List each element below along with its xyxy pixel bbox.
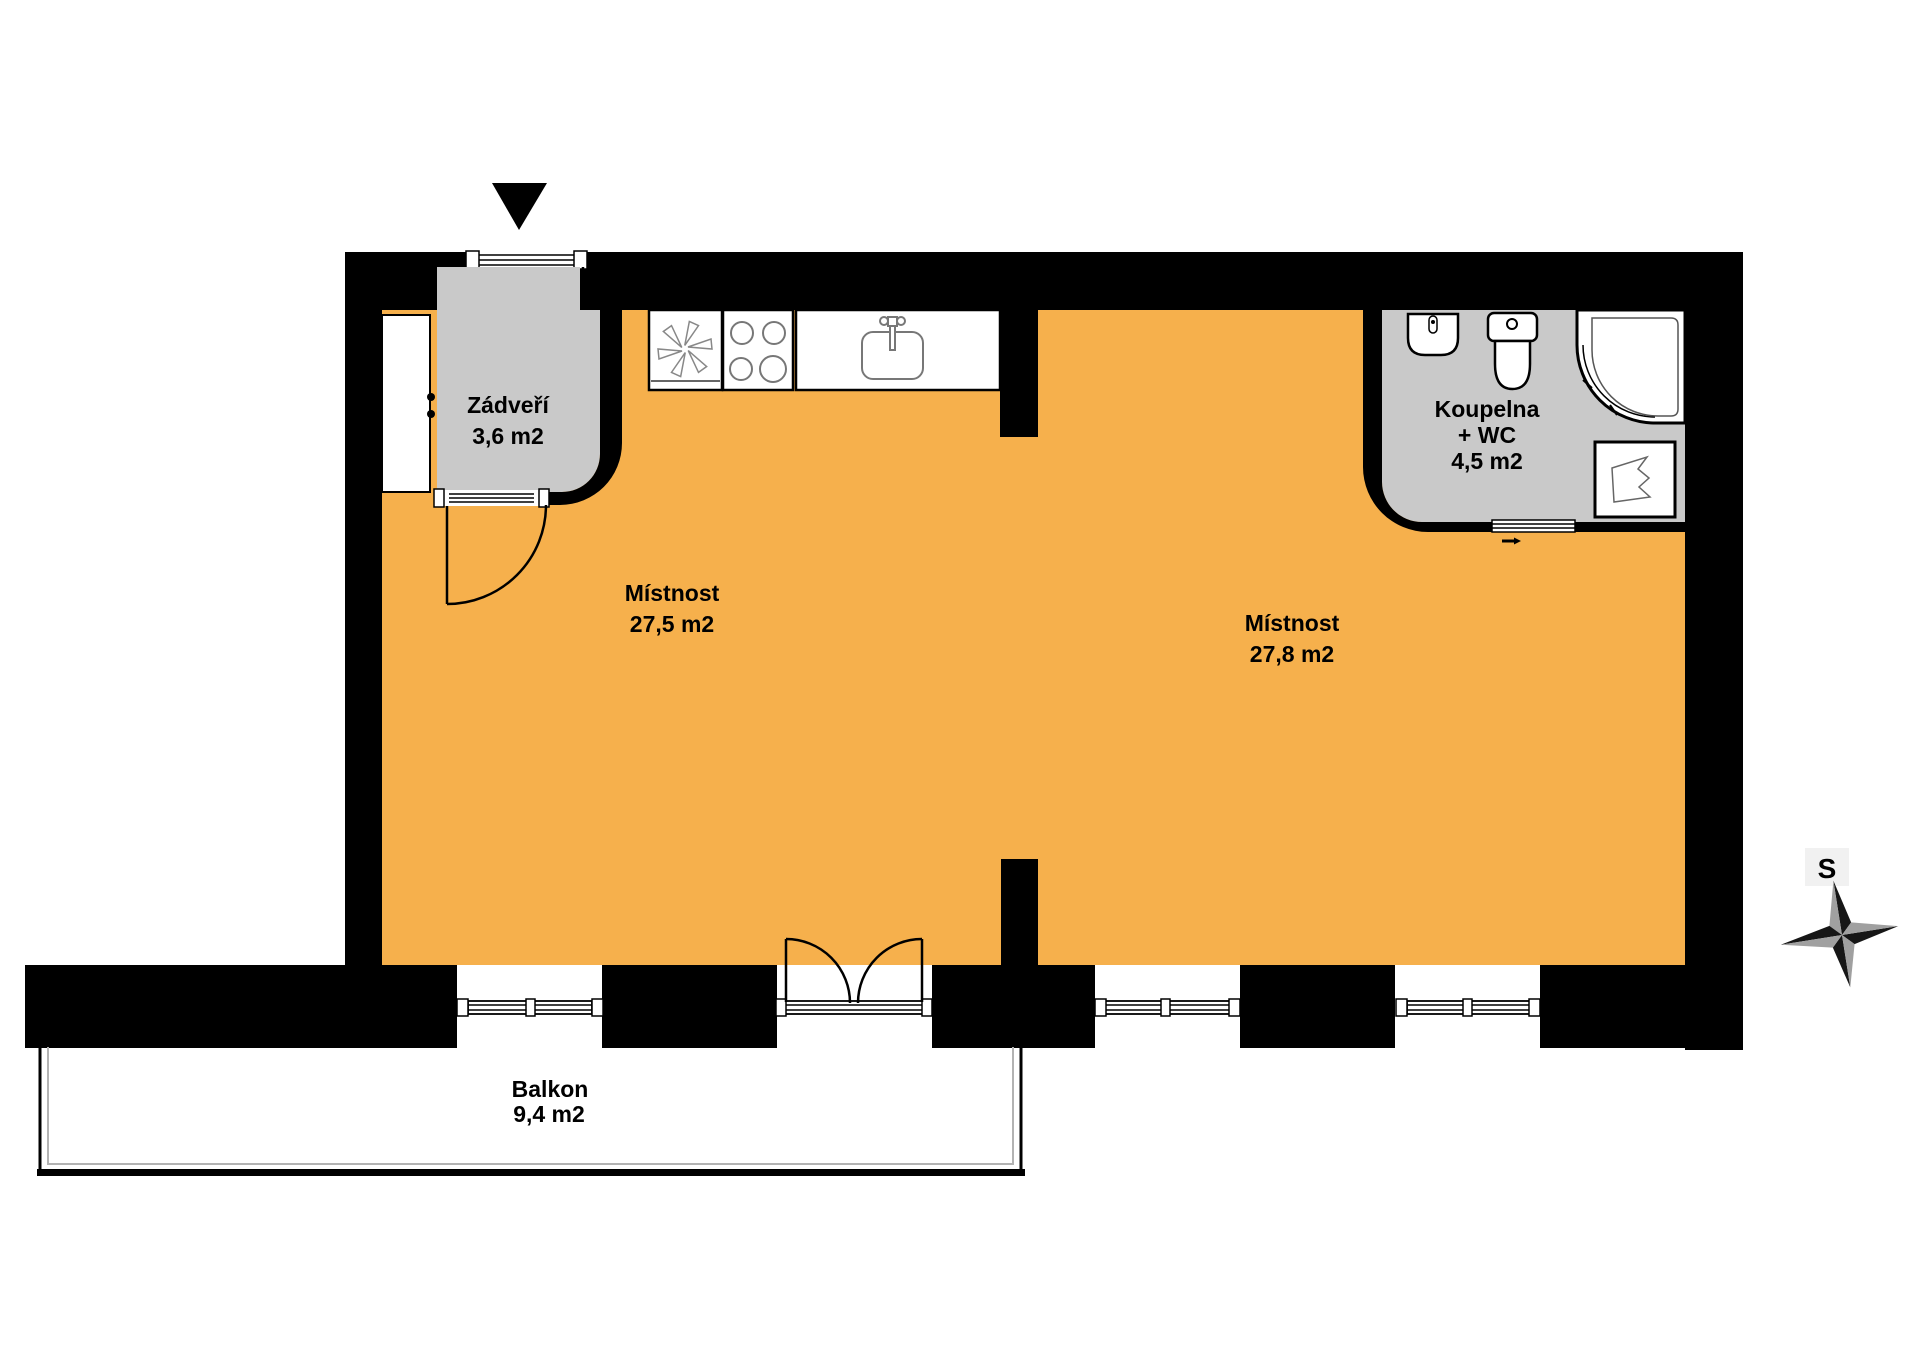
wall-bottom-3 (932, 965, 1095, 1048)
wall-bottom-2 (602, 965, 777, 1048)
wall-stub-top-divider (1000, 252, 1038, 437)
bathroom: Koupelna + WC 4,5 m2 (1363, 310, 1685, 545)
bathroom-sink-symbol (1408, 314, 1458, 355)
closet-hinge-2 (427, 410, 435, 418)
wall-stub-bottom-divider (1001, 859, 1038, 969)
bathroom-name-suffix: + WC (1458, 422, 1516, 448)
room-left-name: Místnost (625, 580, 720, 606)
balcony-railing (37, 1169, 1025, 1176)
room-left-area: 27,5 m2 (630, 611, 714, 637)
wall-bottom-left (25, 965, 457, 1048)
wall-left (345, 252, 382, 967)
vestibule-area: 3,6 m2 (472, 423, 544, 449)
wall-right (1685, 252, 1743, 1050)
bathroom-sliding-door (1492, 520, 1575, 532)
floor-plan: Balkon 9,4 m2 (0, 0, 1920, 1358)
floor-plan-canvas: Balkon 9,4 m2 (0, 0, 1920, 1358)
bathroom-wall-bottom (1575, 522, 1685, 532)
compass-north-label: S (1818, 853, 1837, 884)
vestibule-name: Zádveří (467, 392, 550, 418)
wall-bottom-right (1540, 965, 1743, 1048)
bathroom-area: 4,5 m2 (1451, 448, 1523, 474)
closet (382, 315, 430, 492)
closet-hinge-1 (427, 393, 435, 401)
balcony-name: Balkon (512, 1076, 589, 1102)
bathroom-name: Koupelna (1435, 396, 1540, 422)
balcony-door-sill (785, 1001, 923, 1014)
balcony-area: 9,4 m2 (513, 1101, 585, 1127)
room-right-area: 27,8 m2 (1250, 641, 1334, 667)
room-right-name: Místnost (1245, 610, 1340, 636)
vestibule-floor (437, 267, 600, 492)
wall-bottom-4 (1240, 965, 1395, 1048)
washing-machine-symbol (1595, 442, 1675, 517)
kitchen-counter (649, 310, 1000, 390)
